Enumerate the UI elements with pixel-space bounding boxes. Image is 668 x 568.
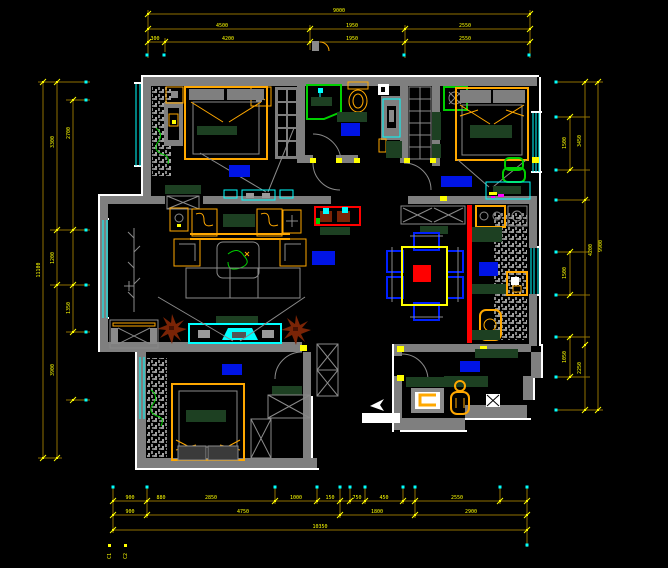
toilet-icon xyxy=(348,82,368,112)
dim-left-mid-1: 3300 xyxy=(50,136,56,148)
dim-left-inner-2: 1350 xyxy=(66,302,72,314)
bathroom xyxy=(307,82,402,162)
desk-chair-icon xyxy=(503,158,525,182)
window-tag-2: C2 xyxy=(123,553,129,559)
room-label-bedroom2 xyxy=(441,176,472,187)
armchair-right xyxy=(280,239,306,266)
door-arc-closet xyxy=(404,163,431,190)
corner-tag-tick xyxy=(124,544,127,547)
console-cabinet xyxy=(315,207,360,225)
dim-bottom-inner-6: 750 xyxy=(352,495,361,501)
window-tag-1: C1 xyxy=(107,553,113,559)
room-label-bedroom1 xyxy=(229,165,250,177)
wardrobe-3 xyxy=(251,395,310,458)
room-label-bathroom xyxy=(341,123,360,136)
window-bedroom2 xyxy=(533,113,539,172)
magenta-mark xyxy=(498,194,504,197)
bedroom1 xyxy=(152,86,299,209)
room-label-entry xyxy=(460,361,480,372)
sideboard xyxy=(401,206,465,224)
dim-top-inner-3: 1950 xyxy=(346,36,358,42)
side-table-right xyxy=(283,210,301,233)
dim-top-mid-2: 1950 xyxy=(346,23,358,29)
kitchen xyxy=(467,205,527,343)
plant-icon xyxy=(281,315,311,345)
door-marker xyxy=(310,158,316,163)
side-table-lamp xyxy=(170,208,188,231)
bed-runner xyxy=(470,125,512,138)
left-dimension-chain: 11100 3300 1200 3900 2700 1350 xyxy=(36,79,90,461)
dim-bottom-inner-4: 1000 xyxy=(290,495,302,501)
room-label-bedroom3 xyxy=(222,364,242,375)
cabinet-strip xyxy=(379,139,386,152)
dim-top-inner-1: 300 xyxy=(150,36,159,42)
dining-room xyxy=(387,206,465,320)
shower-mat xyxy=(311,97,332,106)
dim-left-mid-2: 1200 xyxy=(50,252,56,264)
entry-bench-2 xyxy=(406,377,444,387)
dim-bottom-inner-5: 150 xyxy=(325,495,334,501)
window-kitchen xyxy=(531,248,538,294)
floor-drain-icon xyxy=(486,394,500,407)
feature-wall-hatch xyxy=(147,358,167,458)
dim-top-inner-2: 4200 xyxy=(222,36,234,42)
dim-left-total: 11100 xyxy=(36,262,42,277)
double-bed-1 xyxy=(185,87,267,159)
plant-icon xyxy=(157,314,187,344)
dim-top-mid-3: 2550 xyxy=(459,23,471,29)
corner-tag-tick xyxy=(108,544,111,547)
entry-door-arc xyxy=(402,354,428,380)
dim-bottom-inner-7: 450 xyxy=(379,495,388,501)
door-marker xyxy=(404,158,410,163)
entry-bench-3 xyxy=(444,376,488,387)
dim-right-mid-2: 4200 xyxy=(588,244,594,256)
dim-top-mid-1: 4500 xyxy=(216,23,228,29)
sofa xyxy=(190,209,290,239)
bench-cushion xyxy=(165,185,201,194)
dim-top-total: 9000 xyxy=(333,8,345,14)
bed-runner xyxy=(197,126,237,135)
counter-2 xyxy=(472,284,508,294)
room-label-living xyxy=(312,251,335,265)
wardrobe-top-shelf xyxy=(272,386,302,395)
bottom-dimension-chain: 900 880 2850 1000 150 750 450 2550 900 4… xyxy=(107,486,530,560)
dim-bottom-inner-8: 2550 xyxy=(451,495,463,501)
shoe-cabinet xyxy=(411,388,444,413)
dim-bottom-total: 10350 xyxy=(312,524,327,530)
dim-bottom-mid-3: 1800 xyxy=(371,509,383,515)
room-label-kitchen xyxy=(479,262,498,276)
dresser xyxy=(164,102,183,146)
door-step xyxy=(362,413,400,423)
bath-mat xyxy=(337,112,367,122)
duct-shaft xyxy=(317,344,338,396)
dim-bottom-inner-3: 2850 xyxy=(205,495,217,501)
sliding-door-track xyxy=(467,205,472,343)
bed-runner xyxy=(186,410,226,422)
dim-top-inner-4: 2550 xyxy=(459,36,471,42)
bedroom2 xyxy=(441,87,539,199)
double-bed-3 xyxy=(172,384,244,460)
door-marker xyxy=(397,346,404,352)
window-bedroom1 xyxy=(136,84,140,166)
right-dimension-chain: 9900 3450 4200 2250 1500 1500 1050 xyxy=(555,79,605,413)
bedroom3 xyxy=(147,345,310,460)
door-marker xyxy=(354,158,360,163)
table-centerpiece xyxy=(413,265,431,282)
dim-right-inner-1: 1500 xyxy=(562,137,568,149)
door-marker xyxy=(532,157,539,163)
top-dimension-chain: 9000 4500 1950 2550 300 4200 1950 2550 xyxy=(145,8,533,58)
dim-right-mid-3: 2250 xyxy=(577,362,583,374)
coffee-table xyxy=(217,242,259,278)
living-room xyxy=(110,208,335,348)
chair-left-2 xyxy=(387,277,403,298)
chair-right-1 xyxy=(447,251,463,272)
chair-right-2 xyxy=(447,277,463,298)
double-bed-2 xyxy=(456,88,528,160)
wardrobe-1 xyxy=(275,87,299,159)
dim-right-inner-3: 1050 xyxy=(562,351,568,363)
laundry-basket xyxy=(386,141,402,158)
door-marker xyxy=(397,375,404,381)
tv-console xyxy=(189,324,281,343)
door-marker xyxy=(300,345,307,351)
door-marker xyxy=(336,158,342,163)
dim-bottom-inner-1: 900 xyxy=(125,495,134,501)
magenta-mark xyxy=(491,196,495,198)
dim-left-mid-3: 3900 xyxy=(50,364,56,376)
rug xyxy=(186,268,300,298)
cad-floorplan-canvas: 9000 4500 1950 2550 300 4200 1950 2550 1… xyxy=(0,0,668,568)
counter-3 xyxy=(472,330,500,340)
coat-rack-icon xyxy=(124,228,140,312)
chair-left-1 xyxy=(387,251,403,272)
dim-right-total: 9900 xyxy=(598,240,604,252)
dim-right-inner-2: 1500 xyxy=(562,267,568,279)
floorplan-svg: 9000 4500 1950 2550 300 4200 1950 2550 1… xyxy=(0,0,668,568)
console-shelf xyxy=(320,227,350,235)
door-marker xyxy=(430,158,436,163)
bench-frame xyxy=(167,196,199,209)
dim-bottom-mid-1: 900 xyxy=(125,509,134,515)
bedroom3-door-arc xyxy=(275,352,302,379)
dining-set xyxy=(387,233,463,320)
dim-bottom-mid-4: 2900 xyxy=(465,509,477,515)
entry-bench-1 xyxy=(475,349,518,358)
door-marker xyxy=(440,196,447,201)
shower-head-icon xyxy=(318,88,323,93)
vanity-sink xyxy=(381,96,402,140)
door-arc-bath-left xyxy=(313,163,340,190)
dim-left-inner-1: 2700 xyxy=(66,127,72,139)
dim-bottom-mid-2: 4750 xyxy=(237,509,249,515)
dim-bottom-inner-2: 880 xyxy=(156,495,165,501)
counter-1 xyxy=(472,227,502,242)
dim-right-mid-1: 3450 xyxy=(577,135,583,147)
armchair-left xyxy=(174,239,200,266)
